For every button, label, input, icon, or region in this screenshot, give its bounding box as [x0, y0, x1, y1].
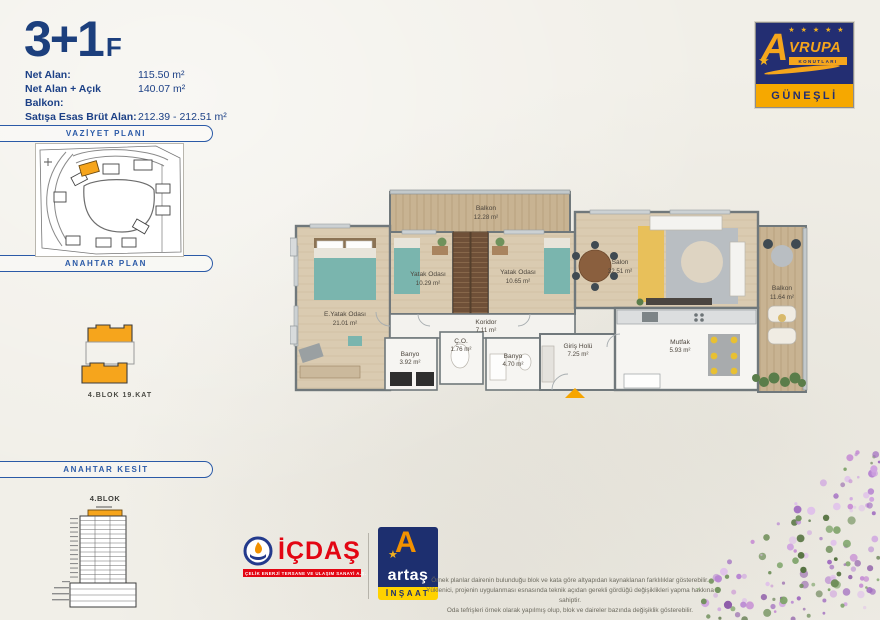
room-area: 3.92 m² — [400, 359, 421, 366]
desk — [492, 246, 508, 255]
spec-label: Net Alan: — [25, 68, 138, 82]
plant-icon — [496, 238, 505, 247]
room-area: 7.25 m² — [568, 351, 589, 358]
building-section-drawing — [48, 503, 148, 615]
lounge-chair — [768, 328, 796, 344]
dresser — [300, 366, 360, 378]
spec-row-net-alan: Net Alan: 115.50 m² — [25, 68, 285, 82]
page-title: 3+1F — [24, 10, 122, 68]
room-area: 32.51 m² — [608, 268, 632, 275]
room-label: Banyo — [401, 351, 420, 358]
wardrobe — [453, 232, 470, 314]
key-plan-core-outline — [86, 342, 134, 364]
key-plan-top-wing — [88, 325, 132, 342]
key-plan-bottom-wing — [82, 363, 127, 383]
desk — [432, 246, 448, 255]
sofa — [650, 216, 722, 230]
stars-icon: ★ ★ ★ ★ ★ — [784, 26, 850, 34]
spec-label: Satışa Esas Brüt Alan: — [25, 110, 138, 124]
spec-value: 140.07 m² — [138, 82, 185, 110]
room-area: 5.93 m² — [670, 347, 691, 354]
project-location-band: GÜNEŞLİ — [756, 84, 853, 107]
rug-yellow — [638, 226, 664, 302]
wardrobe — [471, 232, 488, 314]
bed-master — [314, 238, 376, 300]
shower — [416, 372, 434, 386]
shower — [390, 372, 412, 386]
area-specs: Net Alan: 115.50 m² Net Alan + Açık Balk… — [25, 68, 285, 124]
avrupa-konutlari-logo: ★ ★ ★ ★ ★ A ★ VRUPA KONUTLARI GÜNEŞLİ — [755, 22, 854, 108]
artas-letter-a: A — [395, 528, 417, 558]
room-label: Koridor — [475, 319, 497, 326]
flowers-decoration — [670, 440, 880, 620]
room-area: 21.01 m² — [333, 320, 357, 327]
room-label: Balkon — [476, 205, 496, 212]
key-plan-caption: 4.BLOK 19.KAT — [60, 392, 180, 399]
star-icon: ★ — [758, 53, 770, 69]
spec-row-brut-alan: Satışa Esas Brüt Alan: 212.39 - 212.51 m… — [25, 110, 285, 124]
room-area: 10.65 m² — [506, 278, 530, 285]
room-area: 4.70 m² — [503, 361, 524, 368]
spec-label: Net Alan + Açık Balkon: — [25, 82, 138, 110]
plant-icon — [438, 238, 447, 247]
room-area: 7.11 m² — [476, 327, 497, 334]
icdas-wordmark: İÇDAŞ — [278, 539, 361, 564]
section-header-vaziyet-plani: VAZİYET PLANI — [0, 125, 213, 142]
room-label: Banyo — [504, 353, 523, 360]
spec-value: 212.39 - 212.51 m² — [138, 110, 227, 124]
floor-plan-drawing: Balkon 12.28 m² Salon 32.51 m² Balkon 11… — [290, 186, 810, 402]
apartment-type-title: 3+1 — [24, 10, 103, 68]
balcony-chair — [791, 239, 801, 249]
section-header-anahtar-kesit: ANAHTAR KESİT — [0, 461, 213, 478]
spec-value: 115.50 m² — [138, 68, 185, 82]
room-label: Salon — [612, 259, 629, 266]
room-label: E.Yatak Odası — [324, 311, 366, 318]
ottoman — [348, 336, 362, 346]
bed-2 — [544, 238, 570, 294]
icdas-logo: İÇDAŞ ÇELİK ENERJİ TERSANE VE ULAŞIM SAN… — [243, 536, 361, 577]
balcony-chair — [763, 239, 773, 249]
tv-unit — [646, 298, 712, 305]
logo-subtitle: KONUTLARI — [789, 57, 847, 65]
room-label: Yatak Odası — [410, 271, 446, 278]
icdas-emblem-icon — [243, 536, 273, 566]
entry-cabinet — [542, 346, 554, 382]
logo-wordmark: VRUPA — [789, 40, 841, 56]
room-label: Ç.O. — [454, 338, 468, 345]
round-rug — [681, 241, 723, 283]
room-area: 10.29 m² — [416, 280, 440, 287]
room-label: Giriş Holü — [564, 343, 593, 350]
key-plan-figure — [80, 322, 150, 393]
site-plan-drawing — [36, 144, 183, 256]
logo-upper-panel: ★ ★ ★ ★ ★ A ★ VRUPA KONUTLARI — [756, 23, 853, 84]
plant-icon — [637, 299, 644, 306]
brochure-page: 3+1F Net Alan: 115.50 m² Net Alan + Açık… — [0, 0, 880, 620]
kitchen-sink — [642, 312, 658, 322]
kitchen-counter — [617, 310, 756, 324]
apartment-type-suffix: F — [106, 32, 122, 63]
dining-table — [579, 250, 611, 282]
floor-plan: Balkon 12.28 m² Salon 32.51 m² Balkon 11… — [290, 186, 810, 407]
key-plan-drawing — [80, 322, 150, 388]
balcony-table — [771, 245, 793, 267]
highlighted-floor-marker — [88, 510, 122, 516]
room-label: Balkon — [772, 285, 792, 292]
sofa-l — [730, 242, 745, 296]
room-label: Yatak Odası — [500, 269, 536, 276]
site-plan-map — [35, 143, 184, 257]
kitchen-island — [624, 374, 660, 388]
room-label: Mutfak — [670, 339, 690, 346]
key-section-figure — [48, 503, 148, 620]
icdas-tagline: ÇELİK ENERJİ TERSANE VE ULAŞIM SANAYİ A.… — [243, 569, 361, 577]
decor — [778, 314, 786, 322]
key-section-title: 4.BLOK — [60, 494, 150, 503]
room-area: 11.64 m² — [770, 294, 794, 301]
star-icon: ★ — [388, 548, 398, 561]
room-area: 1.76 m² — [451, 346, 472, 353]
logo-divider — [368, 533, 369, 599]
spec-row-net-balkon: Net Alan + Açık Balkon: 140.07 m² — [25, 82, 285, 110]
room-area: 12.28 m² — [474, 214, 498, 221]
